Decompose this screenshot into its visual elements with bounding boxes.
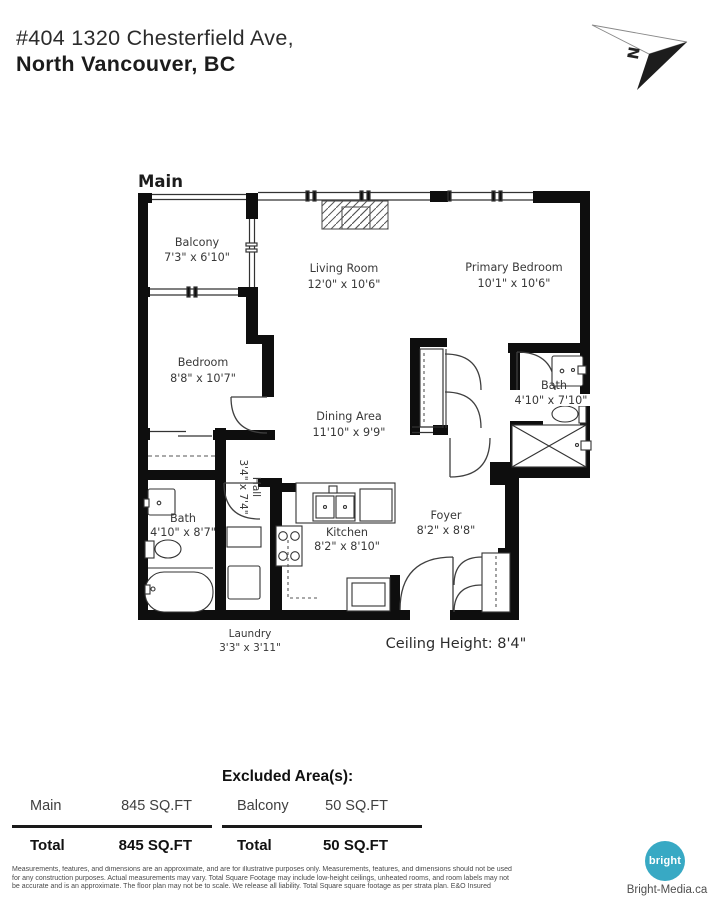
room-laundry-dims: 3'3" x 3'11" <box>219 642 281 654</box>
room-bath-primary-dims: 4'10" x 7'10" <box>515 394 588 407</box>
room-balcony-name: Balcony <box>175 236 220 249</box>
floor-plan: N Main <box>0 0 720 780</box>
summary-main-value: 845 SQ.FT <box>95 798 192 814</box>
room-hall-label: Hall 3'4" x 7'4" <box>237 459 262 514</box>
summary-balcony-label: Balcony <box>237 798 289 814</box>
room-kitchen-dims: 8'2" x 8'10" <box>314 540 380 553</box>
room-primary-name: Primary Bedroom <box>465 261 562 274</box>
brand-logo-text: bright <box>649 855 681 867</box>
room-hall-name: Hall <box>250 477 262 497</box>
room-balcony-dims: 7'3" x 6'10" <box>164 251 230 264</box>
excluded-areas-header: Excluded Area(s): <box>222 768 353 786</box>
plan-title: Main <box>138 172 183 191</box>
fireplace <box>322 201 388 229</box>
room-foyer-name: Foyer <box>431 509 462 522</box>
room-laundry-name: Laundry <box>229 628 272 640</box>
summary-balcony-value: 50 SQ.FT <box>300 798 388 814</box>
disclaimer-line-3: be accurate and is an approximate. The f… <box>12 883 612 892</box>
room-living-name: Living Room <box>310 262 379 275</box>
room-bath-main-name: Bath <box>170 512 196 525</box>
disclaimer-line-2: for any construction purposes. Actual me… <box>12 875 612 884</box>
north-label: N <box>623 45 643 60</box>
brand-website: Bright-Media.ca <box>612 884 720 896</box>
summary-divider-left <box>12 825 212 828</box>
room-primary-dims: 10'1" x 10'6" <box>478 277 551 290</box>
disclaimer: Measurements, features, and dimensions a… <box>12 866 612 892</box>
room-foyer-dims: 8'2" x 8'8" <box>417 524 476 537</box>
room-bath-main-dims: 4'10" x 8'7" <box>150 526 216 539</box>
bathroom-primary-fixtures <box>512 356 591 467</box>
summary-total-value-right: 50 SQ.FT <box>300 837 388 854</box>
laundry-fixtures <box>227 527 261 599</box>
summary-divider-right <box>222 825 422 828</box>
room-bedroom-name: Bedroom <box>178 356 229 369</box>
north-arrow-icon: N <box>592 25 687 90</box>
disclaimer-line-1: Measurements, features, and dimensions a… <box>12 866 612 875</box>
room-kitchen-name: Kitchen <box>326 526 368 539</box>
room-dining-dims: 11'10" x 9'9" <box>313 426 386 439</box>
room-dining-name: Dining Area <box>316 410 381 423</box>
room-hall-dims: 3'4" x 7'4" <box>237 459 249 514</box>
ceiling-height: Ceiling Height: 8'4" <box>386 636 527 652</box>
room-living-dims: 12'0" x 10'6" <box>308 278 381 291</box>
summary-total-value-left: 845 SQ.FT <box>95 837 192 854</box>
summary-total-label-left: Total <box>30 837 65 854</box>
brand-logo: bright <box>645 841 685 881</box>
room-bath-primary-name: Bath <box>541 379 567 392</box>
room-bedroom-dims: 8'8" x 10'7" <box>170 372 236 385</box>
summary-total-label-right: Total <box>237 837 272 854</box>
bathroom-main-fixtures <box>144 489 213 612</box>
summary-main-label: Main <box>30 798 61 814</box>
